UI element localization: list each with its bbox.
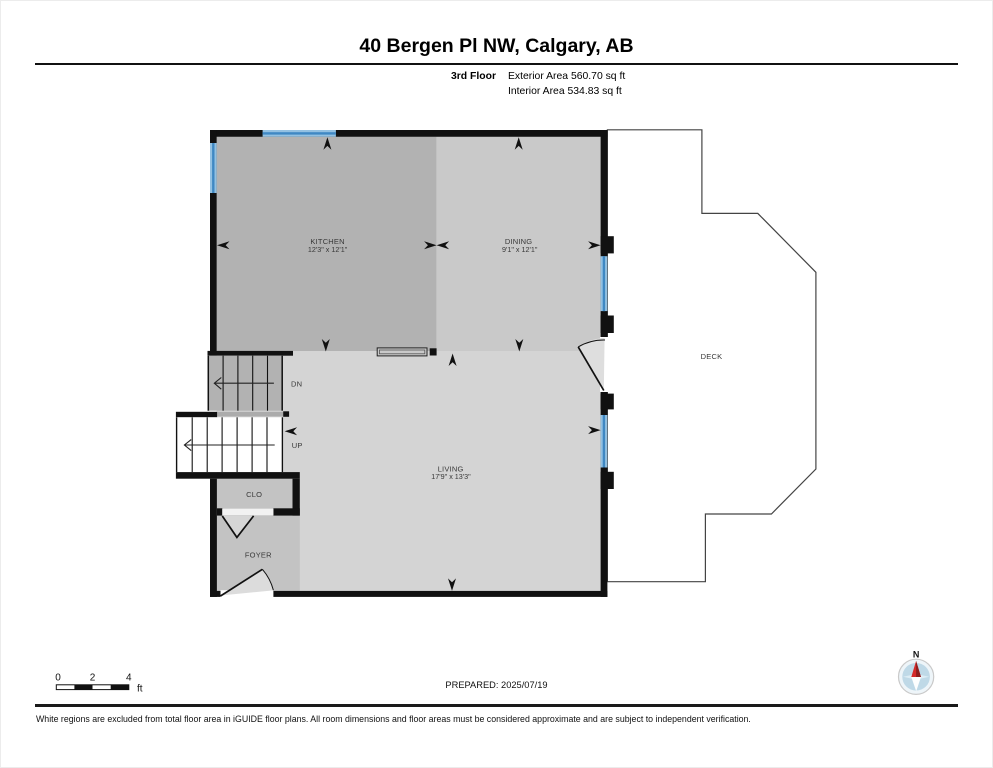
svg-text:DN: DN: [291, 380, 302, 389]
svg-text:17'9" x 13'3": 17'9" x 13'3": [431, 472, 471, 481]
svg-text:12'3" x 12'1": 12'3" x 12'1": [308, 245, 348, 254]
svg-text:CLO: CLO: [246, 490, 262, 499]
svg-text:DECK: DECK: [701, 352, 723, 361]
svg-text:9'1" x 12'1": 9'1" x 12'1": [502, 245, 538, 254]
svg-text:N: N: [913, 650, 920, 660]
svg-text:FOYER: FOYER: [245, 550, 272, 559]
svg-text:UP: UP: [292, 441, 303, 450]
